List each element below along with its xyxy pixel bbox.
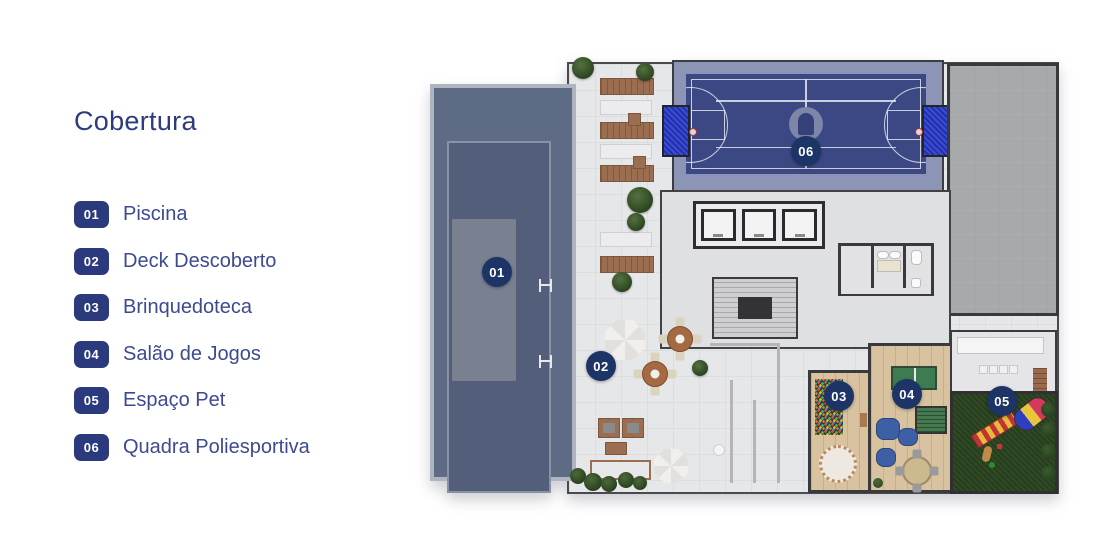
tree — [627, 213, 645, 231]
toilet — [911, 250, 922, 265]
sink — [889, 251, 901, 259]
pool-water — [447, 141, 551, 493]
basketball-rim — [689, 128, 697, 136]
legend-list: 01 Piscina 02 Deck Descoberto 03 Brinque… — [74, 201, 310, 480]
floorplan: 01 02 03 04 05 06 — [420, 55, 1055, 500]
plan-marker-quadra-poliesportiva: 06 — [791, 136, 821, 166]
bush — [1041, 422, 1056, 437]
toilet — [911, 278, 921, 288]
side-table — [605, 442, 627, 455]
basketball-hoop — [662, 105, 690, 157]
court-attack-line — [716, 100, 896, 102]
basketball-hoop — [922, 105, 950, 157]
pool-ladder — [539, 355, 552, 368]
plan-marker-piscina: 01 — [482, 257, 512, 287]
pool-ladder — [539, 279, 552, 292]
sun-lounger — [600, 100, 652, 115]
partition-wall — [710, 343, 780, 346]
sports-court-area — [672, 60, 944, 192]
restroom-partition — [871, 246, 874, 288]
foosball-table — [915, 406, 947, 434]
legend-item-quadra-poliesportiva: 06 Quadra Poliesportiva — [74, 434, 310, 461]
court-center-logo — [798, 113, 814, 135]
tree — [627, 187, 653, 213]
elevator-shaft — [742, 209, 777, 241]
legend-badge: 02 — [74, 248, 109, 275]
wooden-bench — [600, 256, 654, 273]
tree — [572, 57, 594, 79]
floor-tile — [1009, 365, 1018, 374]
plan-marker-deck-descoberto: 02 — [586, 351, 616, 381]
bush — [1041, 466, 1056, 481]
game-room — [868, 343, 953, 493]
bush — [633, 476, 647, 490]
court-key-box — [887, 110, 921, 140]
legend-item-deck-descoberto: 02 Deck Descoberto — [74, 248, 310, 275]
legend-badge: 04 — [74, 341, 109, 368]
bush — [584, 473, 602, 491]
bean-bag — [898, 428, 918, 446]
restrooms — [838, 243, 934, 296]
plan-marker-brinquedoteca: 03 — [824, 381, 854, 411]
elevator-shaft — [782, 209, 817, 241]
side-table — [633, 156, 646, 169]
legend-label: Quadra Poliesportiva — [123, 436, 310, 459]
floor-tile — [999, 365, 1008, 374]
plan-marker-espaco-pet: 05 — [987, 386, 1017, 416]
plant — [873, 478, 883, 488]
dog — [981, 445, 993, 462]
plan-marker-salao-de-jogos: 04 — [892, 379, 922, 409]
legend-label: Salão de Jogos — [123, 343, 261, 366]
play-rug — [819, 445, 857, 483]
game-table — [902, 456, 932, 486]
legend-badge: 03 — [74, 294, 109, 321]
toy-shelf — [860, 413, 867, 427]
side-table — [628, 113, 641, 126]
legend-label: Deck Descoberto — [123, 250, 276, 273]
floor-tile — [989, 365, 998, 374]
bean-bag — [876, 448, 896, 467]
plant — [692, 360, 708, 376]
sun-lounger — [600, 232, 652, 247]
legend-label: Brinquedoteca — [123, 296, 252, 319]
tree — [636, 63, 654, 81]
basketball-rim — [915, 128, 923, 136]
legend-badge: 01 — [74, 201, 109, 228]
partition-wall — [753, 400, 756, 483]
legend-item-piscina: 01 Piscina — [74, 201, 310, 228]
counter — [877, 260, 901, 272]
pet-agility-ramp — [971, 410, 1020, 448]
page-title: Cobertura — [74, 106, 197, 137]
lounge-chair — [598, 418, 620, 438]
elevator-bank — [693, 201, 825, 249]
bush — [601, 476, 617, 492]
outdoor-dining-set — [632, 351, 678, 397]
bean-bag — [876, 418, 900, 440]
bush — [1041, 402, 1056, 417]
legend-item-brinquedoteca: 03 Brinquedoteca — [74, 294, 310, 321]
stairwell — [712, 277, 798, 339]
sink — [877, 251, 889, 259]
floor-drain — [713, 444, 725, 456]
wooden-bench — [600, 122, 654, 139]
legend-label: Piscina — [123, 203, 187, 226]
elevator-shaft — [701, 209, 736, 241]
round-table — [667, 326, 693, 352]
technical-roof-area — [947, 63, 1059, 316]
legend-badge: 05 — [74, 387, 109, 414]
bush — [618, 472, 634, 488]
pet-wash-counter — [957, 337, 1044, 354]
bush — [1041, 444, 1056, 459]
legend-item-salao-de-jogos: 04 Salão de Jogos — [74, 341, 310, 368]
partition-wall — [730, 380, 733, 483]
court-key-box — [691, 110, 725, 140]
restroom-partition — [903, 246, 906, 288]
pet-toy — [997, 444, 1002, 449]
round-table — [642, 361, 668, 387]
tree — [612, 272, 632, 292]
legend-badge: 06 — [74, 434, 109, 461]
lounge-chair — [622, 418, 644, 438]
pool-shallow-ledge — [452, 219, 516, 381]
legend-panel: Cobertura 01 Piscina 02 Deck Descoberto … — [74, 0, 414, 544]
pet-toy — [989, 462, 995, 468]
floor-tile — [979, 365, 988, 374]
partition-wall — [777, 343, 780, 483]
stair-landing — [738, 297, 772, 319]
legend-label: Espaço Pet — [123, 389, 225, 412]
legend-item-espaco-pet: 05 Espaço Pet — [74, 387, 310, 414]
